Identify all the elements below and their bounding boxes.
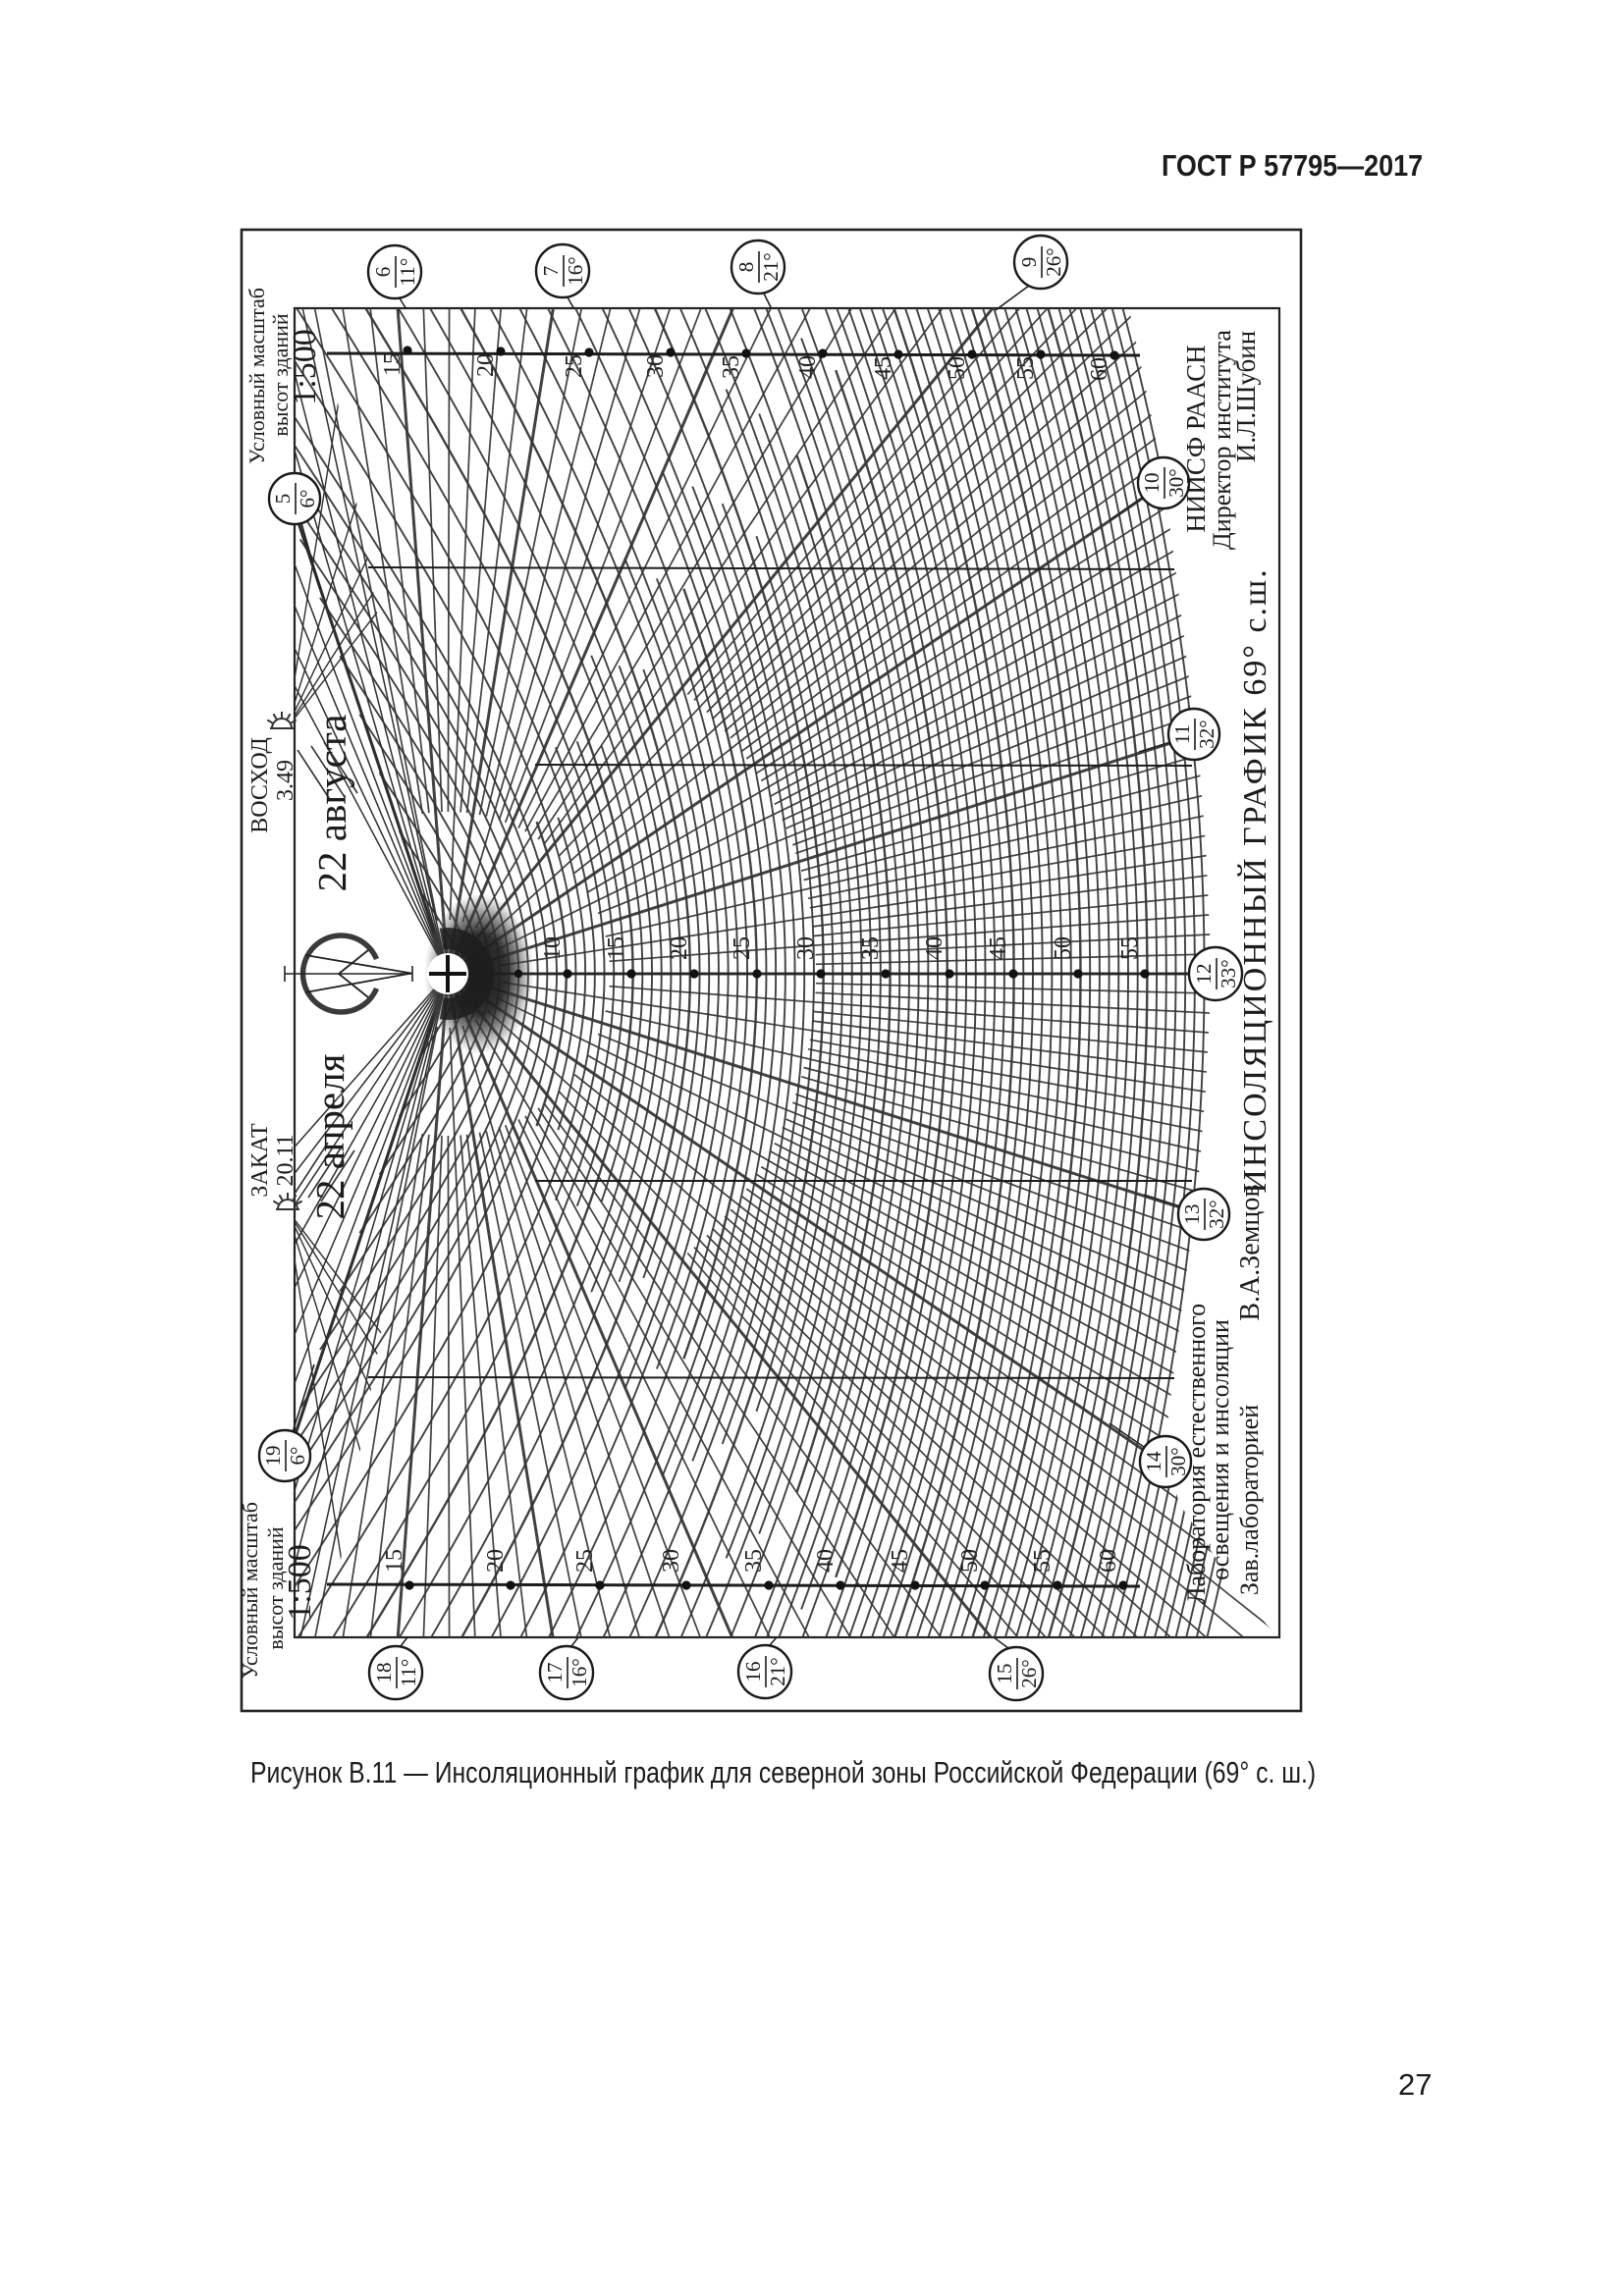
svg-text:20: 20 <box>473 353 499 377</box>
svg-text:ВОСХОД: ВОСХОД <box>247 737 273 833</box>
svg-text:16°: 16° <box>568 1658 591 1686</box>
svg-text:22 августа: 22 августа <box>309 715 354 892</box>
svg-text:17: 17 <box>543 1663 567 1683</box>
svg-text:25: 25 <box>730 936 755 960</box>
svg-text:32°: 32° <box>1195 720 1218 748</box>
svg-text:25: 25 <box>562 354 587 378</box>
svg-text:30: 30 <box>643 354 669 378</box>
svg-text:8: 8 <box>734 262 758 273</box>
svg-text:20.11: 20.11 <box>273 1134 298 1186</box>
svg-text:освещения и инсоляции: освещения и инсоляции <box>1206 1319 1234 1580</box>
svg-text:Условный масштаб: Условный масштаб <box>244 288 269 464</box>
svg-text:14: 14 <box>1142 1451 1165 1472</box>
svg-text:45: 45 <box>986 936 1011 960</box>
svg-text:7: 7 <box>539 266 563 277</box>
svg-text:15: 15 <box>380 352 406 376</box>
svg-text:НИИСФ РААСН: НИИСФ РААСН <box>1181 345 1211 532</box>
svg-text:16: 16 <box>741 1662 765 1682</box>
svg-text:1:500: 1:500 <box>287 329 323 404</box>
svg-text:45: 45 <box>871 356 896 380</box>
svg-text:22 апреля: 22 апреля <box>307 1053 352 1219</box>
svg-text:35: 35 <box>741 1549 767 1573</box>
svg-text:25: 25 <box>572 1549 598 1573</box>
svg-text:21°: 21° <box>766 1657 789 1685</box>
svg-text:30: 30 <box>659 1549 684 1573</box>
svg-text:35: 35 <box>858 936 884 960</box>
svg-text:35: 35 <box>719 355 744 379</box>
svg-text:15: 15 <box>993 1664 1016 1684</box>
svg-text:26°: 26° <box>1042 247 1065 276</box>
svg-text:ЗАКАТ: ЗАКАТ <box>247 1123 273 1198</box>
svg-text:45: 45 <box>888 1549 913 1573</box>
svg-text:10: 10 <box>540 936 566 960</box>
svg-text:50: 50 <box>957 1549 983 1573</box>
svg-text:30: 30 <box>793 936 819 960</box>
svg-text:21°: 21° <box>759 252 783 281</box>
svg-text:20: 20 <box>483 1549 509 1573</box>
svg-text:6°: 6° <box>296 490 319 508</box>
svg-text:5: 5 <box>271 494 295 505</box>
svg-text:11: 11 <box>1170 724 1194 744</box>
svg-text:ИНСОЛЯЦИОННЫЙ ГРАФИК 69° с.ш: ИНСОЛЯЦИОННЫЙ ГРАФИК 69° с.ш. <box>1237 567 1273 1193</box>
svg-text:40: 40 <box>813 1549 839 1573</box>
svg-text:12: 12 <box>1192 964 1216 985</box>
svg-text:11°: 11° <box>396 258 419 287</box>
svg-text:18: 18 <box>372 1663 396 1683</box>
svg-text:13: 13 <box>1180 1204 1204 1225</box>
svg-text:Условный масштаб: Условный масштаб <box>238 1502 262 1679</box>
svg-text:15: 15 <box>382 1549 407 1573</box>
svg-text:1:500: 1:500 <box>282 1544 318 1620</box>
svg-text:55: 55 <box>1117 936 1143 960</box>
svg-text:40: 40 <box>795 355 821 379</box>
svg-text:19: 19 <box>261 1446 285 1467</box>
svg-text:И.Л.Шубин: И.Л.Шубин <box>1231 331 1261 462</box>
svg-text:9: 9 <box>1017 257 1041 268</box>
svg-text:50: 50 <box>1051 936 1076 960</box>
svg-text:32°: 32° <box>1205 1200 1228 1228</box>
svg-text:6°: 6° <box>286 1447 309 1466</box>
svg-text:В.А.Земцов: В.А.Земцов <box>1235 1184 1266 1320</box>
svg-text:60: 60 <box>1087 357 1112 381</box>
svg-text:6: 6 <box>371 267 395 278</box>
svg-text:50: 50 <box>945 356 970 380</box>
svg-text:11°: 11° <box>397 1659 420 1687</box>
svg-text:60: 60 <box>1096 1549 1121 1573</box>
svg-text:55: 55 <box>1030 1549 1056 1573</box>
svg-text:55: 55 <box>1013 356 1039 380</box>
svg-text:10: 10 <box>1140 473 1164 494</box>
svg-text:3.49: 3.49 <box>273 760 298 801</box>
svg-text:40: 40 <box>922 936 947 960</box>
svg-text:26°: 26° <box>1017 1659 1041 1687</box>
svg-text:15: 15 <box>604 936 629 960</box>
svg-text:20: 20 <box>667 936 692 960</box>
svg-text:Зав.лабораторией: Зав.лабораторией <box>1235 1405 1264 1595</box>
svg-text:16°: 16° <box>564 256 587 285</box>
